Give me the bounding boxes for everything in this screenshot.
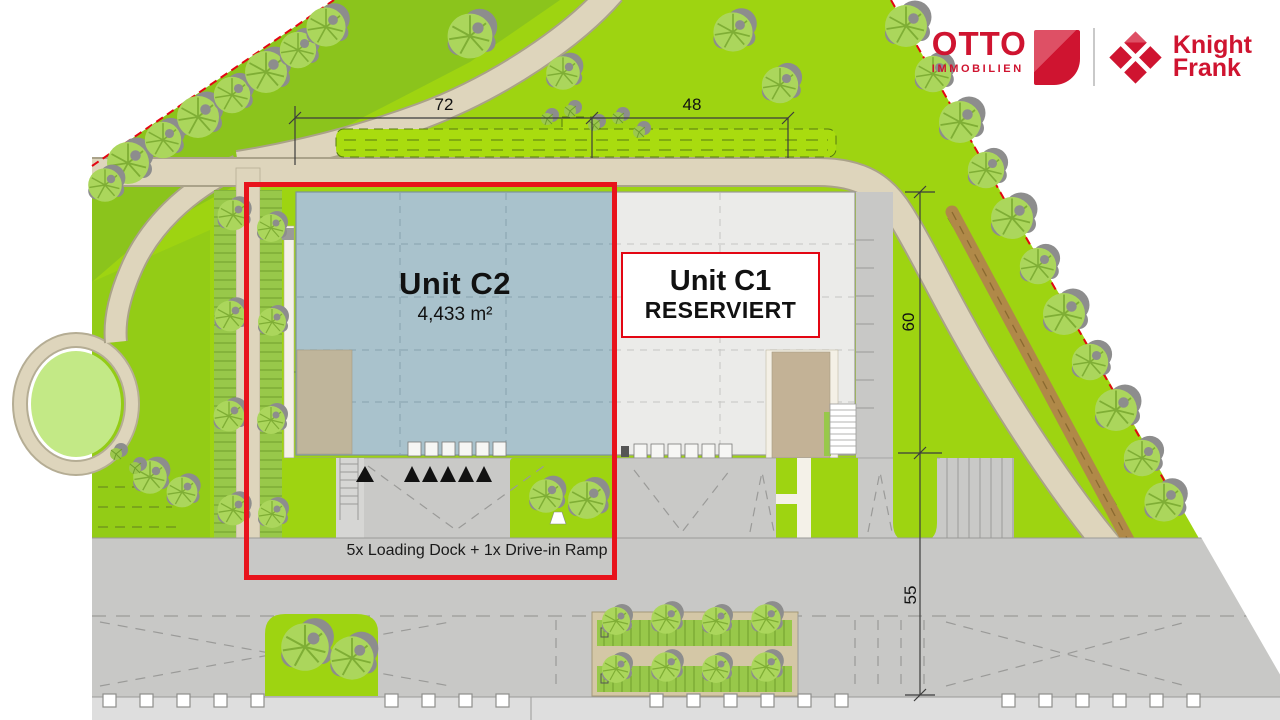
dimension-label-72: 72 (422, 95, 466, 115)
loading-dock-note: 5x Loading Dock + 1x Drive-in Ramp (312, 542, 642, 560)
dimension-label-60: 60 (899, 300, 919, 344)
otto-logo-icon (1034, 30, 1080, 85)
unit-c2-area: 4,433 m² (330, 304, 580, 326)
brand-bar: OTTO IMMOBILIEN Knight Frank (932, 28, 1252, 86)
south-roads (92, 538, 1280, 720)
dimension-label-48: 48 (670, 95, 714, 115)
brand-divider (1093, 28, 1095, 86)
knight-frank-logo-text: Knight Frank (1173, 34, 1252, 80)
otto-logo-text: OTTO (932, 30, 1027, 58)
dimension-label-55: 55 (901, 573, 921, 617)
otto-immobilien-logo: OTTO IMMOBILIEN (932, 30, 1080, 85)
unit-c1-title: Unit C1 (670, 266, 772, 296)
knight-frank-logo: Knight Frank (1108, 29, 1252, 85)
tree-icon (306, 3, 349, 46)
unit-c2-label: Unit C2 4,433 m² (330, 266, 580, 326)
unit-c1-reserved-badge: RESERVIERT (645, 297, 797, 324)
knight-frank-diamond-icon (1108, 29, 1164, 85)
site-plan-drawing (0, 0, 1280, 720)
unit-c1-label-box: Unit C1 RESERVIERT (621, 252, 820, 338)
truck-court (284, 455, 1014, 543)
site-plan-page: Unit C2 4,433 m² Unit C1 RESERVIERT 5x L… (0, 0, 1280, 720)
unit-c2-title: Unit C2 (330, 266, 580, 302)
otto-logo-subtitle: IMMOBILIEN (932, 63, 1027, 75)
